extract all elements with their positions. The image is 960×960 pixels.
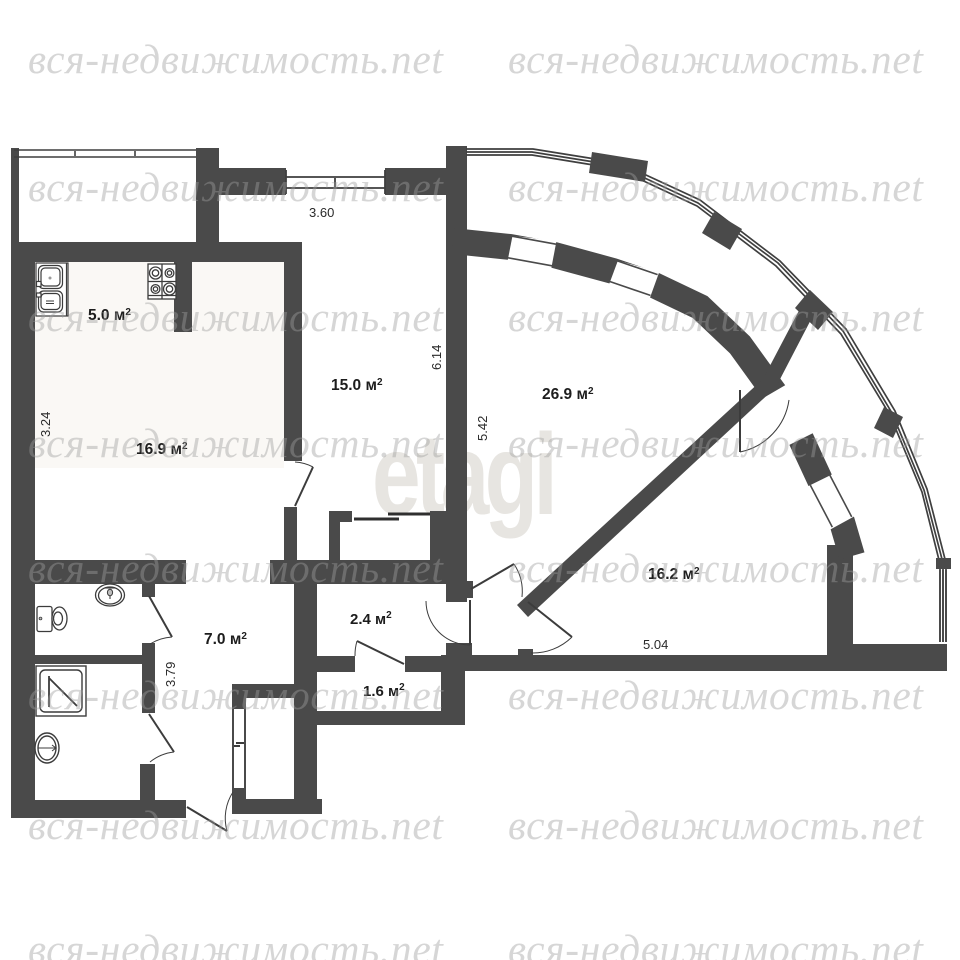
svg-text:5.42: 5.42 <box>475 416 490 441</box>
svg-text:вся-недвижимость.net: вся-недвижимость.net <box>28 164 444 210</box>
svg-text:вся-недвижимость.net: вся-недвижимость.net <box>28 926 444 960</box>
svg-text:вся-недвижимость.net: вся-недвижимость.net <box>28 294 444 340</box>
svg-text:7.0 м2: 7.0 м2 <box>204 631 247 648</box>
svg-text:вся-недвижимость.net: вся-недвижимость.net <box>28 545 444 591</box>
svg-text:вся-недвижимость.net: вся-недвижимость.net <box>28 420 444 466</box>
svg-text:5.04: 5.04 <box>643 637 668 652</box>
svg-text:вся-недвижимость.net: вся-недвижимость.net <box>508 802 924 848</box>
svg-text:вся-недвижимость.net: вся-недвижимость.net <box>28 672 444 718</box>
svg-text:вся-недвижимость.net: вся-недвижимость.net <box>508 420 924 466</box>
svg-text:15.0 м2: 15.0 м2 <box>331 377 383 394</box>
svg-text:вся-недвижимость.net: вся-недвижимость.net <box>508 672 924 718</box>
svg-text:вся-недвижимость.net: вся-недвижимость.net <box>508 164 924 210</box>
svg-text:вся-недвижимость.net: вся-недвижимость.net <box>28 802 444 848</box>
svg-text:вся-недвижимость.net: вся-недвижимость.net <box>508 926 924 960</box>
svg-text:вся-недвижимость.net: вся-недвижимость.net <box>28 36 444 82</box>
svg-text:26.9 м2: 26.9 м2 <box>542 386 594 403</box>
svg-text:2.4 м2: 2.4 м2 <box>350 610 392 628</box>
svg-text:вся-недвижимость.net: вся-недвижимость.net <box>508 545 924 591</box>
svg-text:6.14: 6.14 <box>429 345 444 370</box>
svg-text:вся-недвижимость.net: вся-недвижимость.net <box>508 294 924 340</box>
svg-text:вся-недвижимость.net: вся-недвижимость.net <box>508 36 924 82</box>
